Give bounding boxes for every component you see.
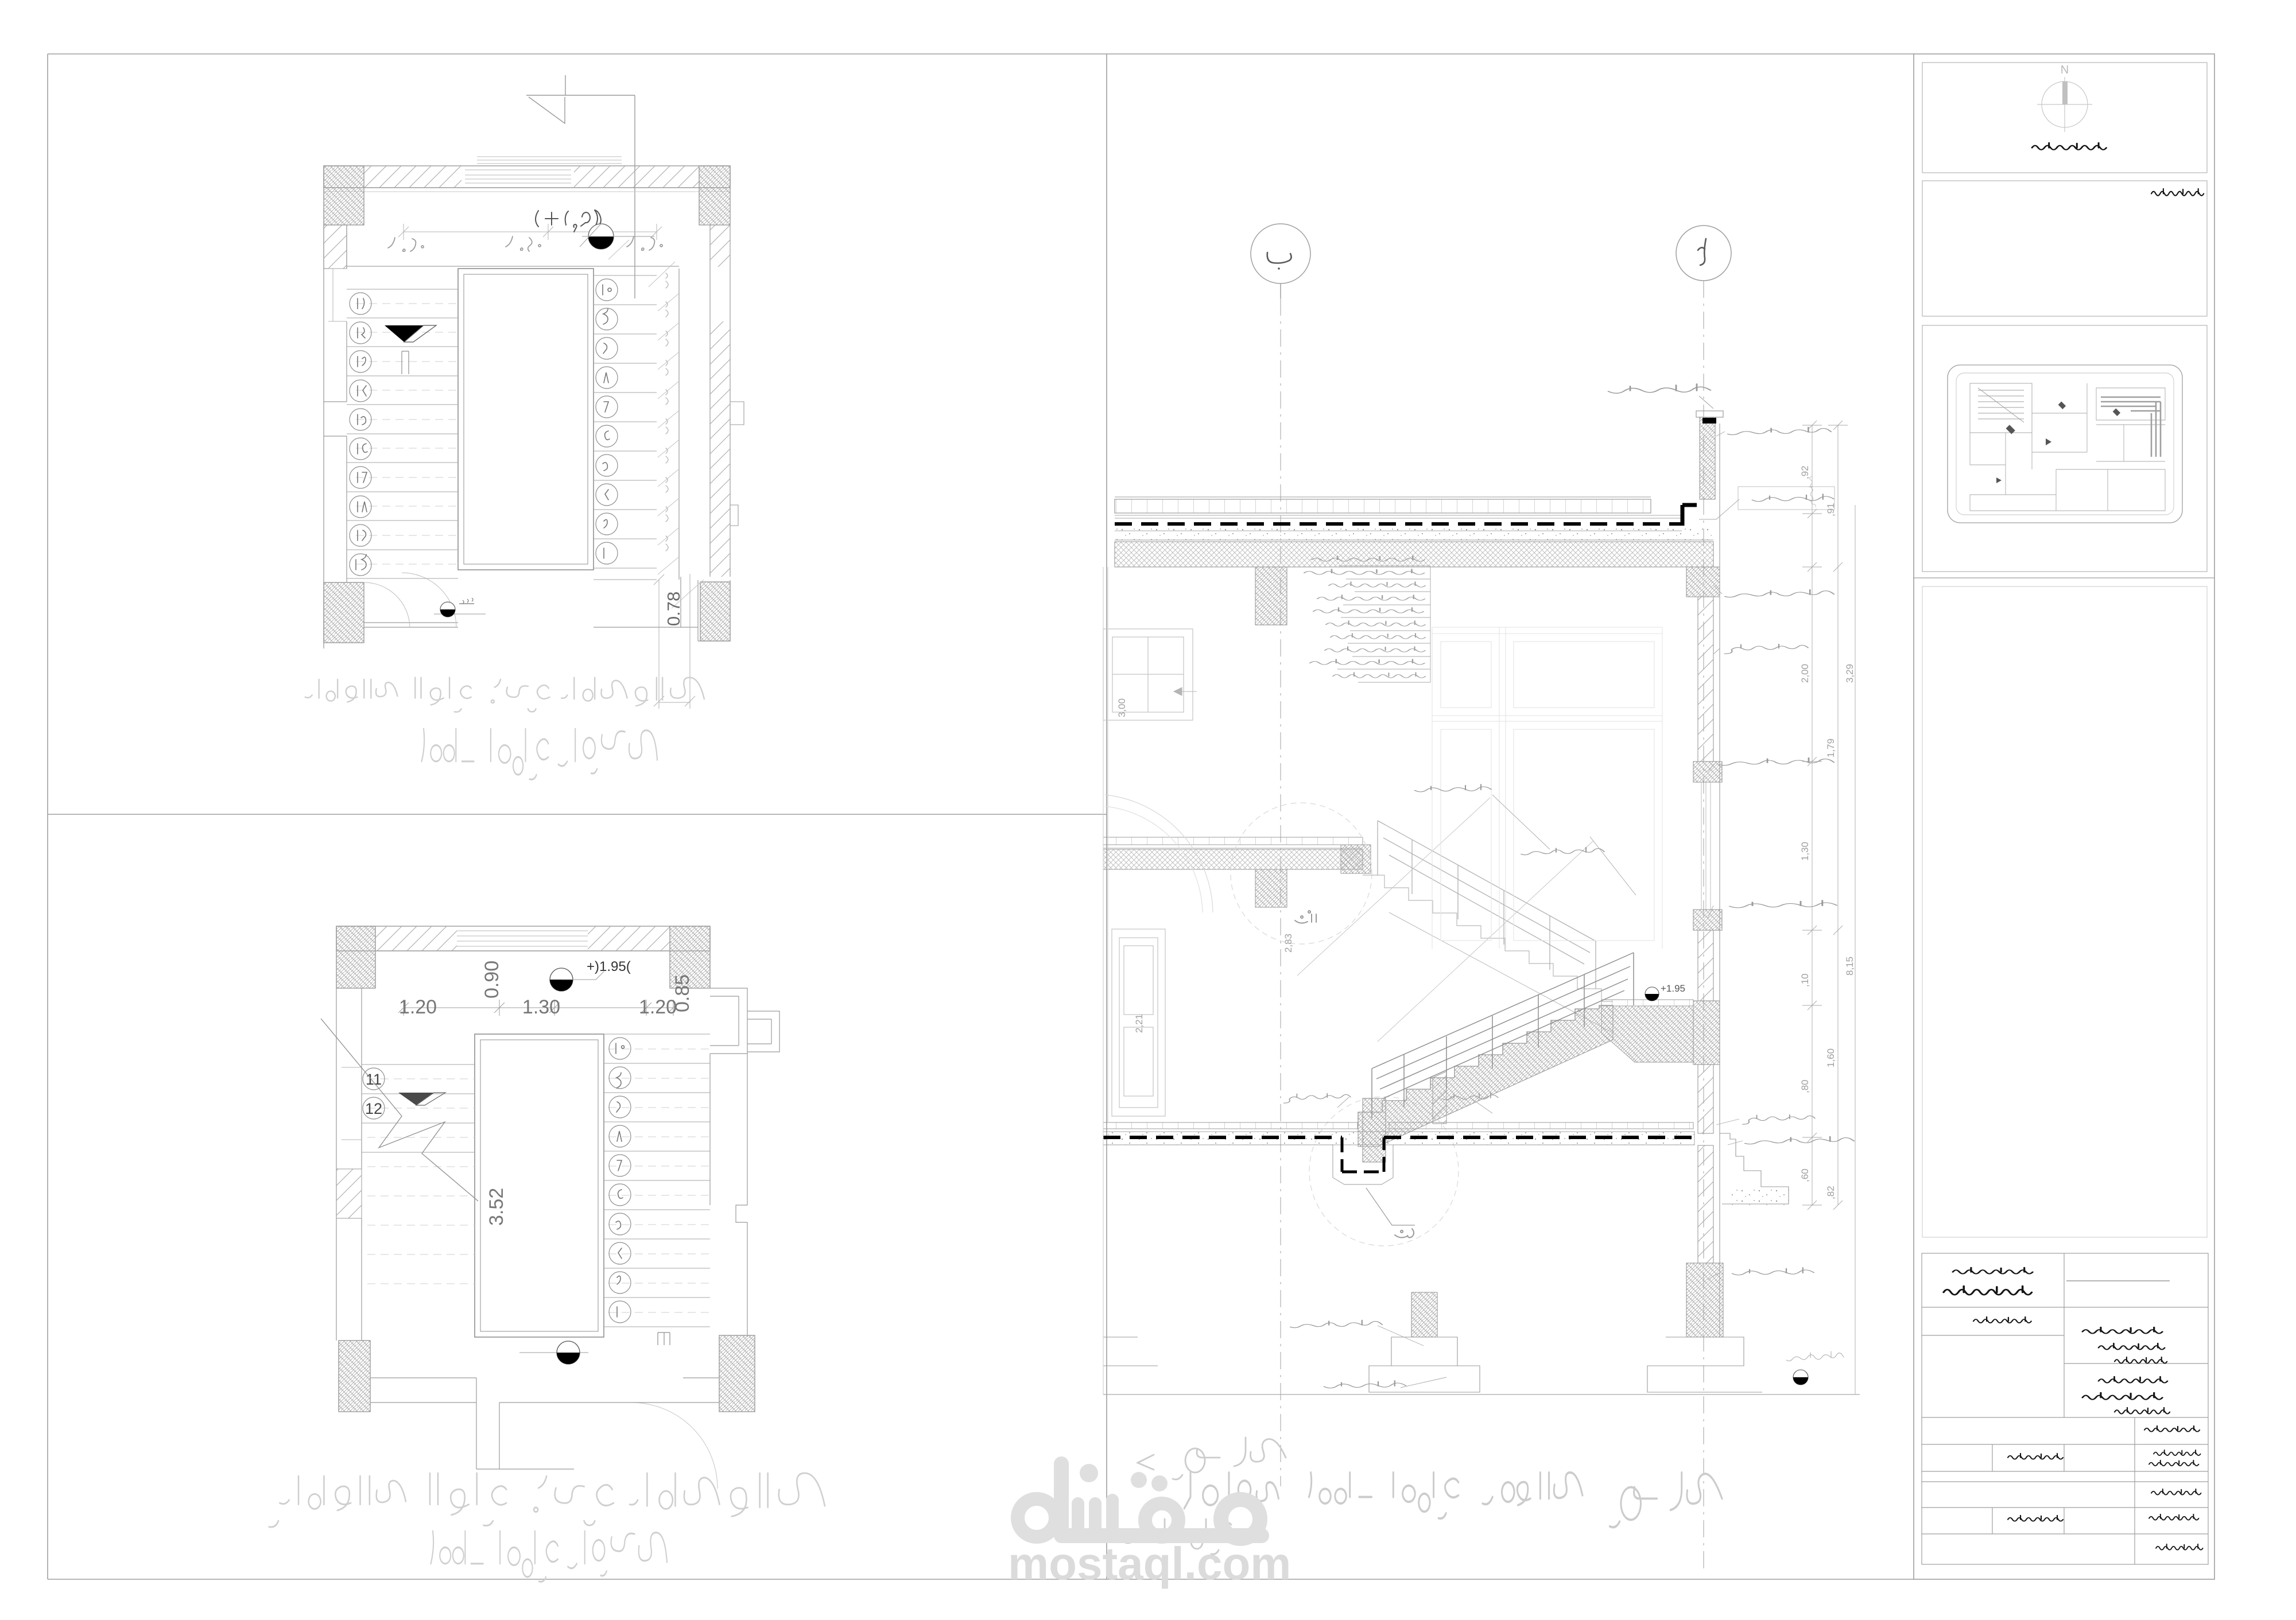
svg-text:+)1.95(: +)1.95(	[587, 959, 631, 974]
svg-text:11: 11	[366, 1071, 382, 1088]
svg-text:,60: ,60	[1799, 1168, 1810, 1182]
svg-text:2,83: 2,83	[1283, 934, 1294, 953]
svg-text:0.78: 0.78	[664, 592, 684, 626]
svg-text:,91: ,91	[1825, 503, 1836, 516]
svg-text:0.90: 0.90	[481, 961, 503, 999]
svg-text:,82: ,82	[1825, 1186, 1836, 1199]
svg-text:3,29: 3,29	[1844, 664, 1855, 683]
svg-text:,80: ,80	[1799, 1079, 1810, 1093]
svg-text:2,21: 2,21	[1134, 1014, 1145, 1033]
svg-text:0.85: 0.85	[672, 974, 693, 1012]
svg-text:2,00: 2,00	[1799, 664, 1810, 683]
svg-text:1,79: 1,79	[1825, 739, 1836, 757]
svg-text:8,15: 8,15	[1844, 957, 1855, 976]
svg-text:,10: ,10	[1799, 973, 1810, 987]
svg-text:3.52: 3.52	[486, 1188, 507, 1226]
svg-text:N: N	[2061, 64, 2069, 76]
svg-text:3,00: 3,00	[1116, 698, 1127, 717]
svg-text:1,60: 1,60	[1825, 1048, 1836, 1067]
svg-text:,92: ,92	[1799, 465, 1810, 479]
svg-text:1.30: 1.30	[522, 996, 560, 1018]
svg-text:mostaql.com: mostaql.com	[1008, 1538, 1291, 1589]
svg-text:12: 12	[365, 1100, 382, 1117]
svg-text:1,30: 1,30	[1799, 842, 1810, 861]
svg-text:+1.95: +1.95	[1661, 983, 1685, 994]
svg-text:1.20: 1.20	[399, 996, 437, 1018]
